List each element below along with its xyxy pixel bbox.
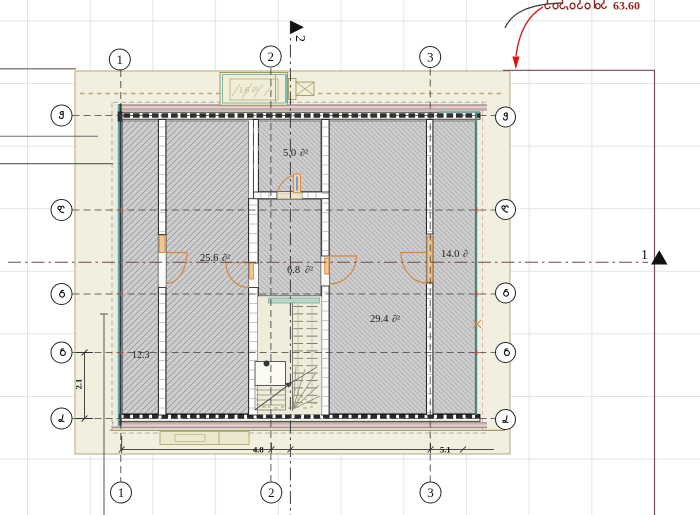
svg-text:3: 3	[427, 50, 434, 65]
svg-text:29.4: 29.4	[370, 314, 389, 325]
svg-text:1: 1	[117, 52, 124, 67]
svg-text:63.60: 63.60	[613, 0, 640, 13]
svg-text:5.1: 5.1	[440, 445, 451, 455]
svg-text:6.8: 6.8	[287, 265, 300, 276]
svg-text:5.0: 5.0	[283, 148, 296, 159]
svg-text:2: 2	[268, 485, 275, 500]
svg-text:∂²: ∂²	[392, 314, 400, 325]
svg-text:4.8: 4.8	[253, 445, 264, 455]
svg-text:1: 1	[118, 485, 125, 500]
svg-text:∂²: ∂²	[252, 86, 259, 95]
svg-text:2: 2	[292, 35, 307, 42]
svg-text:25.6: 25.6	[200, 253, 218, 264]
svg-text:∂²: ∂²	[222, 253, 230, 264]
svg-text:∂: ∂	[463, 249, 468, 260]
svg-text:∂²: ∂²	[305, 265, 313, 276]
svg-text:14.0: 14.0	[441, 249, 459, 260]
svg-text:3: 3	[427, 485, 434, 500]
svg-text:1: 1	[641, 248, 648, 263]
svg-text:2.1: 2.1	[74, 379, 84, 390]
svg-text:12.3: 12.3	[132, 350, 150, 361]
svg-text:2: 2	[267, 49, 274, 64]
svg-text:1.6: 1.6	[239, 86, 249, 95]
svg-text:∂²: ∂²	[300, 148, 308, 159]
